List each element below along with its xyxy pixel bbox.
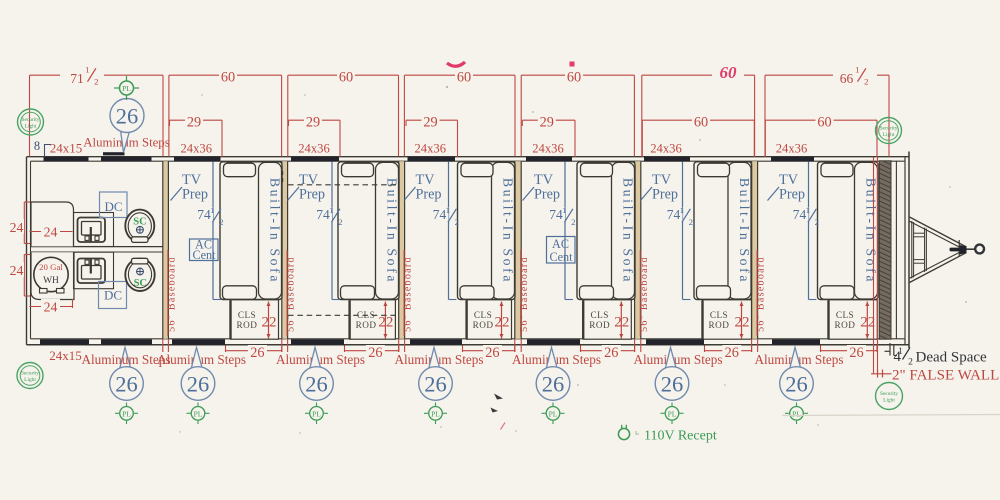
- svg-text:Light: Light: [24, 377, 36, 383]
- svg-text:Prep: Prep: [415, 187, 441, 203]
- svg-text:60: 60: [817, 115, 831, 131]
- svg-text:2" FALSE WALL: 2" FALSE WALL: [892, 368, 999, 384]
- svg-text:22: 22: [614, 315, 629, 331]
- svg-text:PL: PL: [668, 409, 677, 418]
- svg-text:29: 29: [306, 115, 320, 131]
- svg-text:29: 29: [423, 115, 437, 131]
- svg-text:Security: Security: [880, 126, 898, 132]
- svg-text:2: 2: [338, 217, 342, 227]
- svg-text:24x36: 24x36: [650, 142, 681, 156]
- svg-text:60: 60: [567, 70, 581, 86]
- svg-text:Aluminum Steps: Aluminum Steps: [81, 352, 170, 367]
- svg-text:56" Baseboard: 56" Baseboard: [403, 256, 414, 332]
- svg-text:24x36: 24x36: [298, 142, 329, 156]
- svg-text:2: 2: [908, 358, 913, 368]
- svg-text:Prep: Prep: [299, 187, 325, 203]
- svg-text:24: 24: [44, 300, 58, 315]
- svg-text:24: 24: [44, 225, 58, 240]
- svg-text:Prep: Prep: [182, 187, 208, 203]
- svg-text:29: 29: [540, 115, 554, 131]
- svg-text:2: 2: [571, 217, 575, 227]
- svg-text:56" Baseboard: 56" Baseboard: [756, 256, 767, 332]
- svg-text:22: 22: [735, 315, 750, 331]
- svg-text:24x15: 24x15: [49, 348, 82, 363]
- svg-text:22: 22: [262, 315, 277, 331]
- svg-text:56" Baseboard: 56" Baseboard: [286, 256, 297, 332]
- svg-text:Built-In Sofa: Built-In Sofa: [268, 178, 283, 284]
- svg-text:60: 60: [457, 70, 471, 86]
- svg-text:24x15: 24x15: [50, 141, 83, 156]
- svg-text:74: 74: [197, 207, 211, 222]
- svg-text:26: 26: [725, 345, 739, 361]
- svg-text:CLS: CLS: [591, 310, 609, 320]
- svg-text:CLS: CLS: [238, 310, 256, 320]
- svg-text:60: 60: [720, 63, 738, 82]
- svg-text:26: 26: [661, 372, 684, 397]
- svg-text:Prep: Prep: [779, 187, 805, 203]
- svg-text:26: 26: [849, 345, 863, 361]
- svg-text:71: 71: [70, 71, 84, 86]
- svg-text:26: 26: [116, 104, 139, 129]
- svg-text:Cent: Cent: [549, 250, 573, 264]
- svg-text:ROD: ROD: [356, 320, 377, 330]
- svg-text:110V Recept: 110V Recept: [644, 429, 717, 444]
- svg-text:Light: Light: [883, 398, 895, 404]
- svg-text:Aluminum Steps: Aluminum Steps: [276, 352, 365, 367]
- svg-text:1: 1: [210, 205, 214, 215]
- svg-text:2: 2: [864, 76, 868, 86]
- svg-text:PL: PL: [194, 409, 203, 418]
- svg-text:CLS: CLS: [836, 310, 854, 320]
- svg-text:2: 2: [219, 217, 223, 227]
- svg-text:1: 1: [806, 205, 810, 215]
- svg-text:Built-In Sofa: Built-In Sofa: [501, 178, 516, 284]
- svg-text:Dead Space: Dead Space: [916, 350, 988, 366]
- svg-text:26: 26: [604, 345, 618, 361]
- svg-text:PL: PL: [431, 409, 440, 418]
- svg-text:74: 74: [549, 207, 563, 222]
- svg-text:56" Baseboard: 56" Baseboard: [519, 256, 530, 332]
- svg-text:26: 26: [250, 345, 264, 361]
- svg-text:DC: DC: [104, 288, 122, 303]
- svg-text:29: 29: [187, 115, 201, 131]
- svg-text:24x36: 24x36: [532, 142, 563, 156]
- svg-text:2: 2: [94, 76, 98, 86]
- svg-text:ROD: ROD: [473, 320, 494, 330]
- svg-text:Prep: Prep: [534, 187, 560, 203]
- svg-text:74: 74: [316, 207, 330, 222]
- svg-text:Aluminum Steps: Aluminum Steps: [633, 352, 722, 367]
- svg-text:ROD: ROD: [237, 320, 258, 330]
- svg-text:Built-In Sofa: Built-In Sofa: [737, 178, 752, 284]
- svg-text:SC: SC: [133, 217, 146, 228]
- svg-text:26: 26: [115, 372, 138, 397]
- svg-text:74: 74: [667, 207, 681, 222]
- svg-text:20 Gal: 20 Gal: [39, 262, 63, 272]
- svg-text:Built-In Sofa: Built-In Sofa: [621, 178, 636, 284]
- svg-text:2: 2: [815, 217, 819, 227]
- svg-text:22: 22: [378, 315, 393, 331]
- svg-text:Light: Light: [883, 132, 895, 138]
- svg-text:ROD: ROD: [835, 320, 856, 330]
- svg-text:26: 26: [187, 372, 210, 397]
- svg-text:PL: PL: [792, 409, 801, 418]
- svg-text:Built-In Sofa: Built-In Sofa: [864, 178, 879, 284]
- svg-text:Prep: Prep: [652, 187, 678, 203]
- svg-text:56" Baseboard: 56" Baseboard: [639, 256, 650, 332]
- svg-text:PL: PL: [122, 409, 131, 418]
- svg-text:PL: PL: [549, 409, 558, 418]
- svg-text:1: 1: [446, 205, 450, 215]
- svg-text:26: 26: [305, 372, 328, 397]
- svg-text:1: 1: [898, 347, 903, 357]
- svg-text:1: 1: [329, 205, 333, 215]
- svg-text:24x36: 24x36: [776, 142, 807, 156]
- svg-text:WH: WH: [43, 276, 59, 286]
- svg-text:8: 8: [34, 139, 40, 153]
- svg-text:74: 74: [433, 207, 447, 222]
- svg-text:Security: Security: [21, 371, 39, 377]
- svg-text:DC: DC: [104, 199, 122, 214]
- svg-text:PL: PL: [122, 84, 131, 93]
- svg-text:2: 2: [455, 217, 459, 227]
- svg-text:26: 26: [785, 372, 808, 397]
- svg-text:22: 22: [495, 315, 510, 331]
- svg-text:ROD: ROD: [589, 320, 610, 330]
- svg-text:CLS: CLS: [710, 310, 728, 320]
- svg-text:56" Baseboard: 56" Baseboard: [166, 256, 177, 332]
- svg-text:Light: Light: [25, 124, 37, 130]
- svg-text:24: 24: [10, 263, 24, 278]
- svg-text:66: 66: [840, 71, 854, 86]
- svg-text:1: 1: [85, 64, 89, 74]
- svg-text:24x36: 24x36: [181, 142, 212, 156]
- svg-text:ROD: ROD: [709, 320, 730, 330]
- svg-text:CLS: CLS: [474, 310, 492, 320]
- svg-text:26: 26: [485, 345, 499, 361]
- svg-text:Cent: Cent: [192, 248, 216, 262]
- svg-text:Security: Security: [880, 391, 898, 397]
- svg-text:Built-In Sofa: Built-In Sofa: [385, 178, 400, 284]
- svg-text:1: 1: [562, 205, 566, 215]
- svg-text:24x36: 24x36: [415, 142, 446, 156]
- svg-text:26: 26: [368, 345, 382, 361]
- svg-text:1: 1: [680, 205, 684, 215]
- svg-text:2: 2: [689, 217, 693, 227]
- svg-text:74: 74: [793, 207, 807, 222]
- svg-text:26: 26: [542, 372, 565, 397]
- svg-text:60: 60: [221, 70, 235, 86]
- svg-text:60: 60: [694, 115, 708, 131]
- svg-text:1: 1: [855, 64, 859, 74]
- svg-text:26: 26: [424, 372, 447, 397]
- svg-text:PL: PL: [312, 409, 321, 418]
- svg-text:24: 24: [10, 220, 24, 235]
- svg-text:Security: Security: [22, 117, 40, 123]
- svg-text:60: 60: [339, 70, 353, 86]
- svg-text:SC: SC: [134, 278, 147, 289]
